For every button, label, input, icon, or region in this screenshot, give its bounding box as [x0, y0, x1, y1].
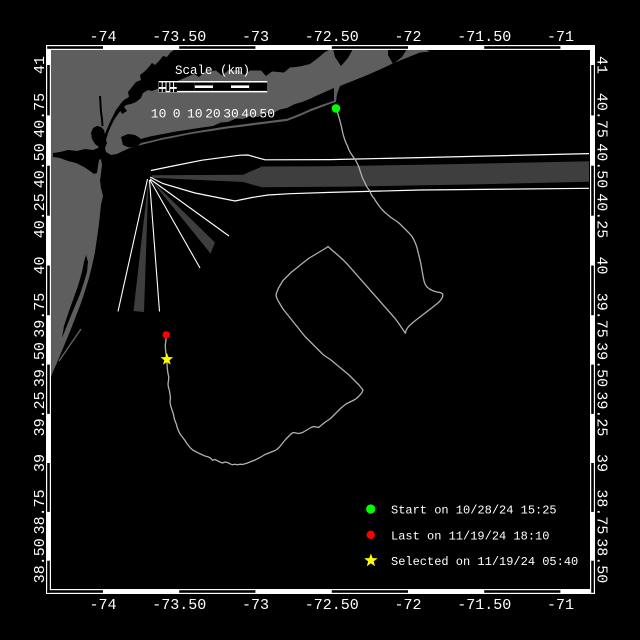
svg-text:0: 0: [173, 107, 181, 122]
svg-text:40.75: 40.75: [593, 93, 610, 138]
svg-text:Selected on 11/19/24 05:40: Selected on 11/19/24 05:40: [391, 555, 578, 569]
svg-text:38.75: 38.75: [593, 489, 610, 534]
svg-text:-73: -73: [242, 29, 269, 46]
svg-text:39.25: 39.25: [593, 391, 610, 436]
svg-text:40: 40: [593, 256, 610, 274]
svg-text:-72: -72: [394, 597, 421, 614]
svg-text:39.75: 39.75: [32, 293, 49, 338]
svg-text:40.50: 40.50: [593, 143, 610, 188]
svg-text:-74: -74: [89, 29, 116, 46]
svg-text:40.50: 40.50: [32, 143, 49, 188]
svg-text:39: 39: [593, 454, 610, 472]
svg-text:40.75: 40.75: [32, 93, 49, 138]
svg-text:39.25: 39.25: [32, 391, 49, 436]
svg-text:-71.50: -71.50: [457, 597, 511, 614]
svg-text:39.50: 39.50: [32, 342, 49, 387]
svg-text:-73.50: -73.50: [152, 29, 206, 46]
svg-text:30: 30: [223, 107, 239, 122]
svg-text:41: 41: [32, 56, 49, 74]
svg-text:50: 50: [259, 107, 275, 122]
svg-text:38.50: 38.50: [32, 538, 49, 583]
svg-text:41: 41: [593, 56, 610, 74]
svg-text:-72.50: -72.50: [305, 29, 359, 46]
svg-text:10: 10: [187, 107, 203, 122]
svg-text:40.25: 40.25: [593, 193, 610, 238]
svg-text:40: 40: [32, 256, 49, 274]
svg-text:-74: -74: [89, 597, 116, 614]
svg-text:-73.50: -73.50: [152, 597, 206, 614]
svg-text:-72.50: -72.50: [305, 597, 359, 614]
svg-text:39.75: 39.75: [593, 293, 610, 338]
svg-text:38.50: 38.50: [593, 538, 610, 583]
svg-text:40: 40: [241, 107, 257, 122]
svg-text:Start on 10/28/24 15:25: Start on 10/28/24 15:25: [391, 504, 557, 518]
svg-text:Scale (km): Scale (km): [175, 64, 250, 78]
svg-text:38.75: 38.75: [32, 489, 49, 534]
svg-text:40.25: 40.25: [32, 193, 49, 238]
svg-text:-73: -73: [242, 597, 269, 614]
svg-text:-71: -71: [547, 597, 574, 614]
svg-text:39.50: 39.50: [593, 342, 610, 387]
svg-text:Last on 11/19/24 18:10: Last on 11/19/24 18:10: [391, 530, 549, 544]
svg-text:-72: -72: [394, 29, 421, 46]
svg-text:20: 20: [205, 107, 221, 122]
svg-text:-71.50: -71.50: [457, 29, 511, 46]
svg-text:-71: -71: [547, 29, 574, 46]
svg-text:10: 10: [151, 107, 167, 122]
svg-text:39: 39: [32, 454, 49, 472]
